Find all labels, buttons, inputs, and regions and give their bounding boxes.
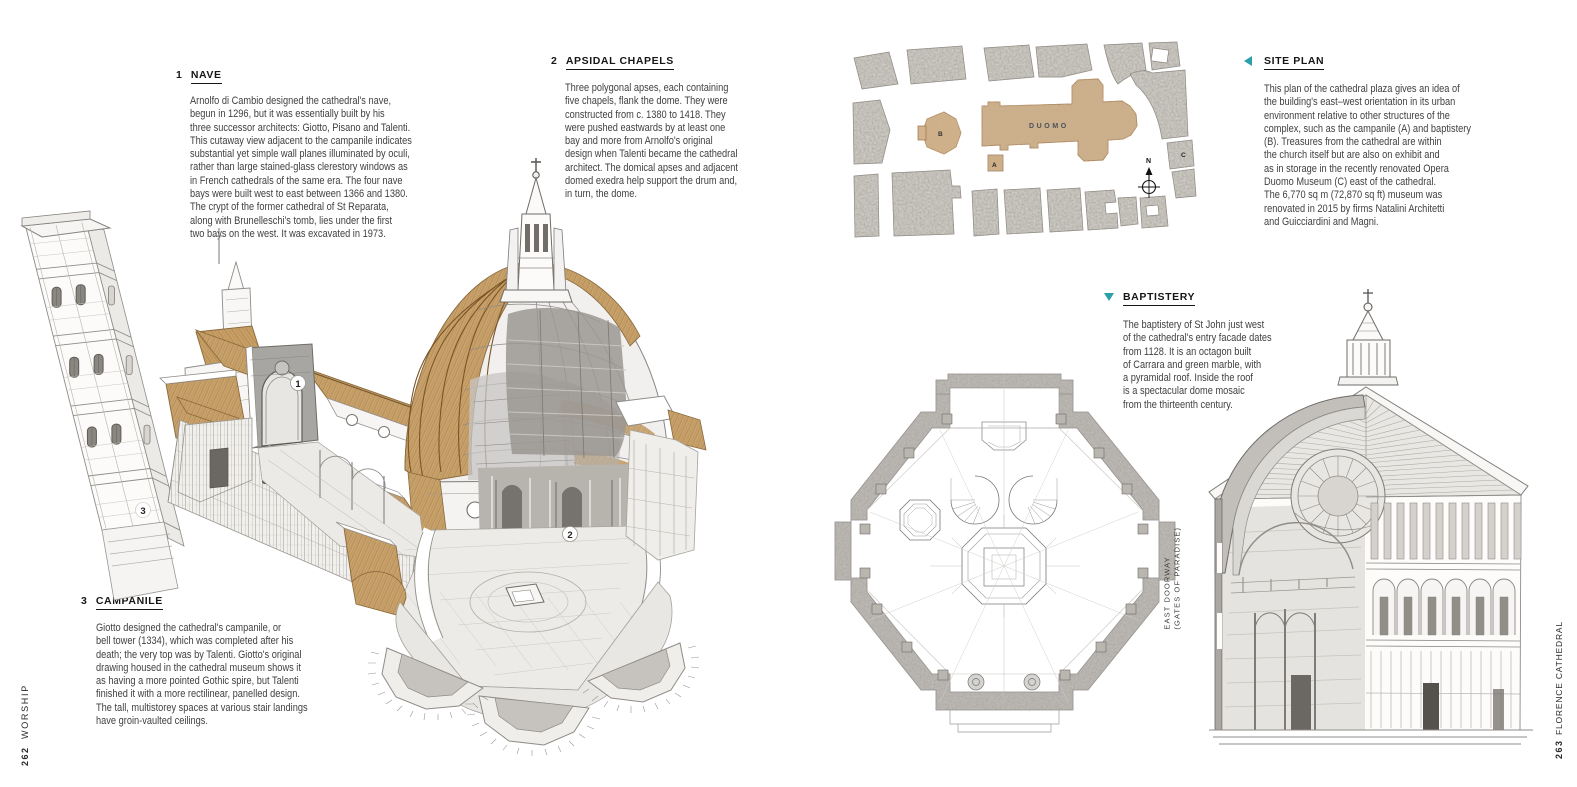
svg-text:A: A [992,162,997,169]
svg-text:2: 2 [567,530,572,541]
svg-text:1: 1 [295,379,301,390]
svg-text:DUOMO: DUOMO [1029,123,1069,130]
svg-text:3: 3 [140,506,145,517]
svg-text:C: C [1181,152,1186,159]
svg-text:N: N [1146,158,1151,165]
svg-text:B: B [938,131,943,138]
